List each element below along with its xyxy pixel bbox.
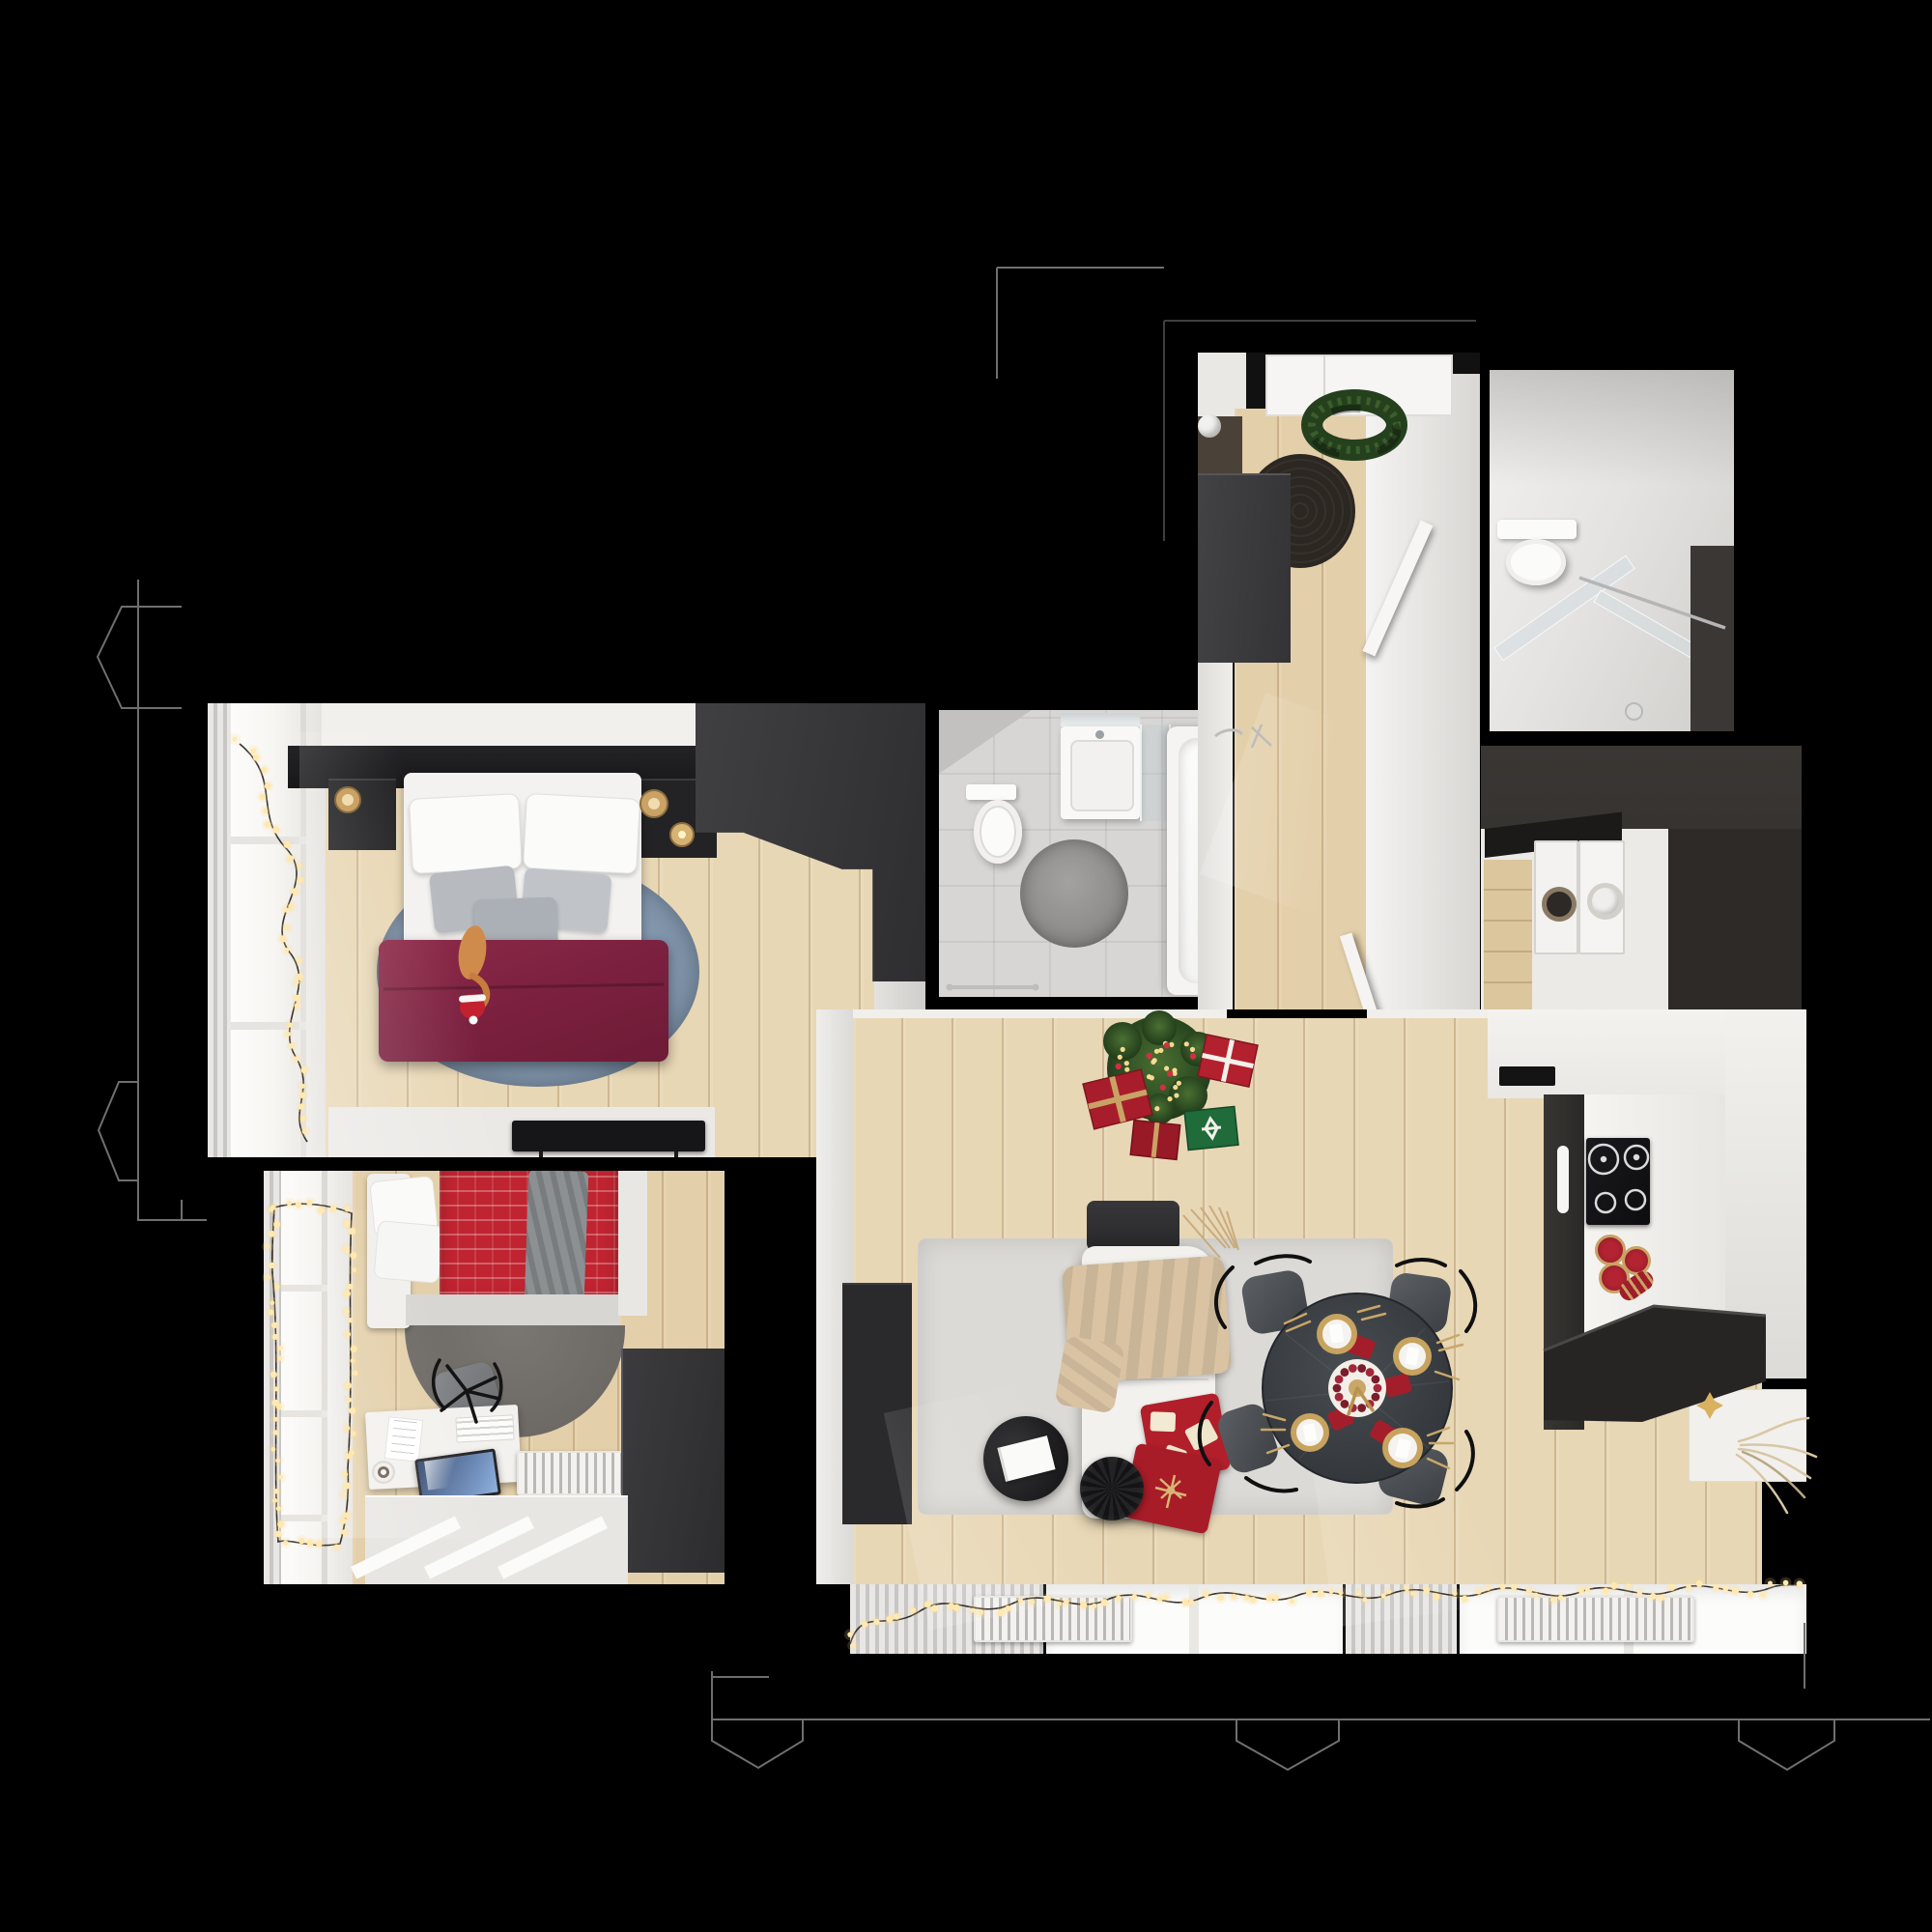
shower-bathroom-ceiling-shade: [1490, 370, 1734, 486]
shower-niche-dark: [1690, 546, 1734, 731]
kitchen-wall-right: [1725, 1009, 1806, 1378]
office-radiator: [517, 1451, 625, 1495]
pillow-white-right: [523, 793, 640, 874]
living-tv-cabinet: [842, 1283, 912, 1524]
office-wall-sliver: [618, 1171, 647, 1316]
laundry-wood-strip: [1484, 860, 1532, 1012]
bedroom-curtain: [208, 703, 231, 1157]
office-wardrobe: [621, 1349, 724, 1573]
red-pillow-motif-2: [1184, 1418, 1219, 1451]
room-shower-bathroom: [1490, 370, 1734, 731]
office-window-frame-h2: [281, 1410, 327, 1417]
room-laundry: [1481, 746, 1802, 1016]
desk-monitor-glare: [424, 1456, 467, 1490]
laundry-dark-column: [1668, 829, 1802, 1016]
sofa-throw-flap: [1054, 1335, 1125, 1414]
bedroom-tv: [512, 1121, 705, 1151]
sink-basin: [1070, 740, 1134, 811]
vanity-mirror: [1061, 713, 1140, 726]
hall-wall-left-lower: [1198, 662, 1233, 1026]
washer-porthole: [1542, 887, 1577, 922]
kitchen-dark-lower-cabinets: [1544, 1094, 1584, 1430]
hall-wall-right: [1366, 374, 1480, 1026]
room-home-office: [264, 1171, 724, 1584]
hall-ceiling-lamp: [1198, 414, 1221, 438]
desk-mug: [372, 1461, 395, 1484]
shower-head: [1625, 702, 1643, 721]
hall-wardrobe: [1198, 473, 1291, 663]
desk-keyboard: [455, 1414, 514, 1442]
induction-cooktop: [1586, 1138, 1650, 1225]
bedroom-window-frame-h2: [231, 1022, 306, 1030]
wallhung-toilet-tank: [1497, 520, 1577, 539]
dryer-porthole: [1587, 883, 1624, 920]
nightstand-left: [328, 779, 396, 850]
pleated-pouf: [1080, 1457, 1144, 1520]
living-wall-top-1: [853, 1009, 1227, 1018]
office-window-frame-v: [322, 1171, 327, 1584]
wallhung-toilet-bowl: [1506, 539, 1566, 585]
wardrobe-corner: [696, 703, 925, 981]
bedroom-wall-top: [322, 703, 700, 748]
window-1-mullion: [1189, 1584, 1199, 1654]
floor-plan-stage: [0, 0, 1932, 1932]
entry-door-seam: [1323, 355, 1325, 412]
toilet-tank: [966, 784, 1016, 800]
toilet-bowl: [974, 800, 1022, 864]
curtain-mid: [1343, 1584, 1460, 1654]
living-radiator-left: [974, 1596, 1132, 1642]
office-curtain: [264, 1171, 281, 1584]
room-living-kitchen: [816, 1009, 1806, 1654]
entry-door: [1265, 355, 1453, 416]
kitchen-white-cabinet: [1689, 1389, 1806, 1482]
bathroom-round-rug: [1020, 839, 1128, 948]
office-mattress-edge: [406, 1294, 620, 1325]
living-radiator-right: [1497, 1596, 1694, 1642]
bathroom-corner-shadow: [939, 710, 1032, 774]
office-pillow-2: [374, 1220, 444, 1284]
gray-throw: [525, 1171, 589, 1305]
room-entry-hall: [1198, 353, 1480, 1026]
pillow-white-left: [409, 793, 523, 874]
oven-handle: [1557, 1146, 1569, 1213]
red-pillow-motif-1: [1150, 1411, 1176, 1432]
kitchen-sink-slot: [1499, 1066, 1555, 1086]
sink-faucet: [1095, 730, 1104, 739]
office-window-frame-h1: [281, 1285, 327, 1292]
burgundy-duvet: [379, 940, 668, 1062]
desk-papers: [384, 1416, 423, 1463]
office-window-frame-h3: [281, 1515, 327, 1521]
bedroom-window-frame-h1: [231, 837, 306, 844]
sofa-headrest: [1087, 1201, 1179, 1251]
